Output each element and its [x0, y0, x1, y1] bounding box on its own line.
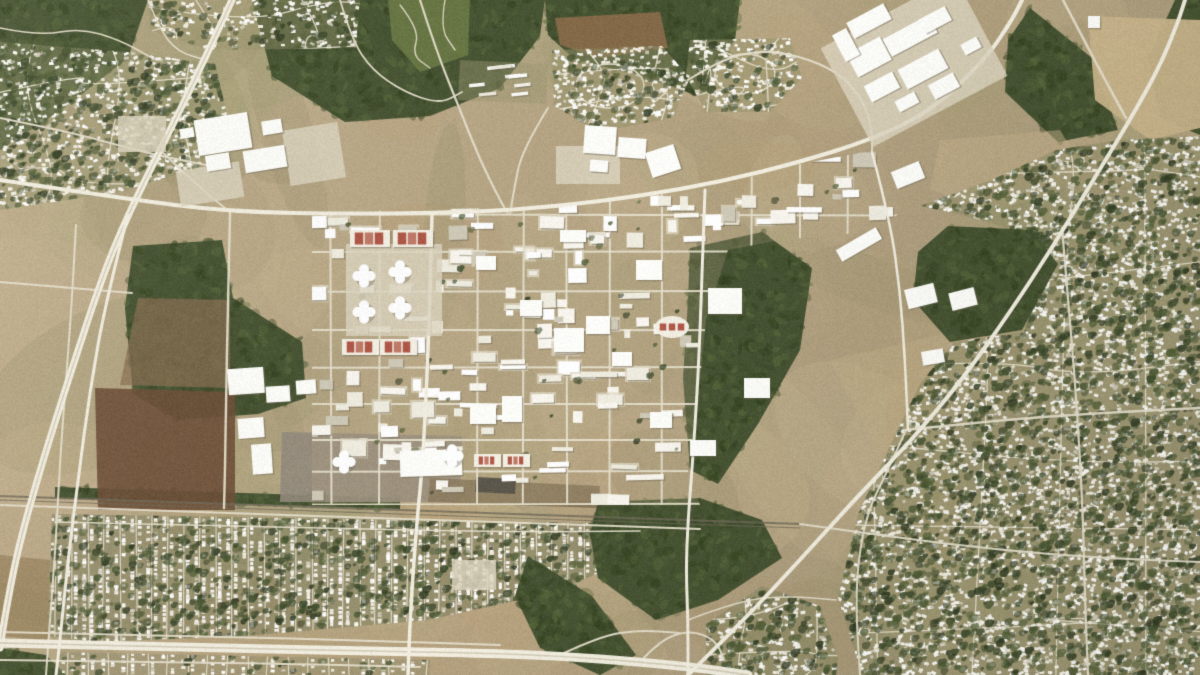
map-viewport: [0, 0, 1200, 675]
satellite-map-image[interactable]: [0, 0, 1200, 675]
